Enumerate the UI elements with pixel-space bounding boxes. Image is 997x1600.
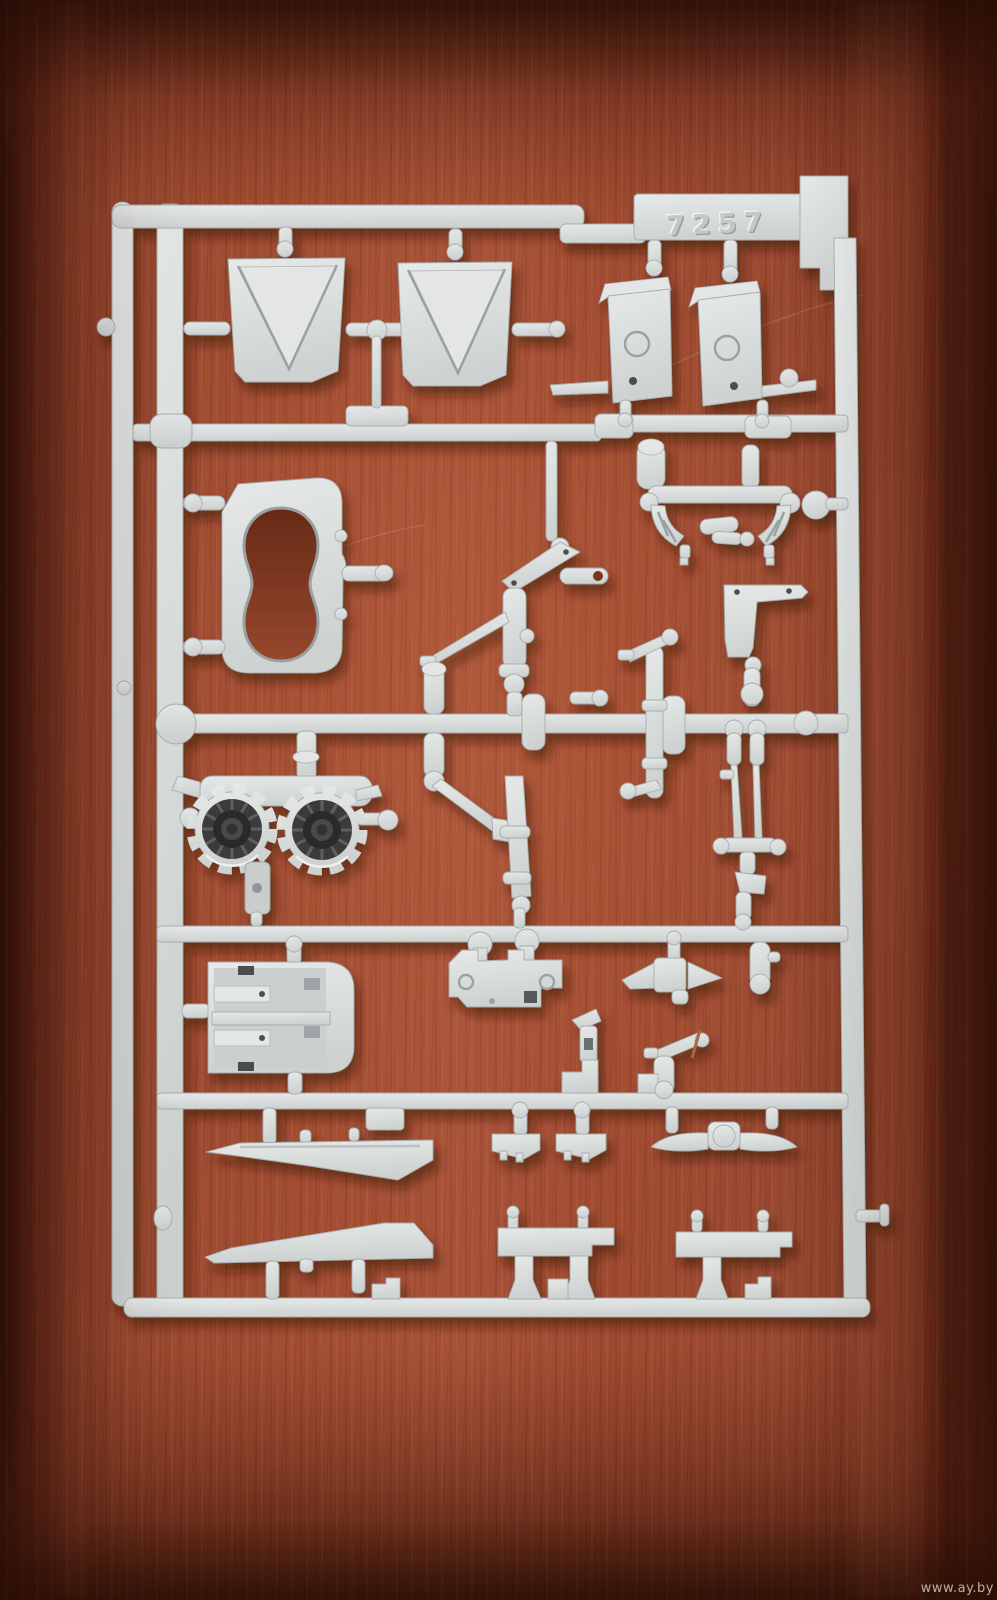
frame-rail-outer-left: [112, 202, 133, 1306]
part-intake-ramp-left: [228, 258, 345, 382]
sprue-illustration: 7257 7257 7257: [0, 0, 997, 1600]
part-strake-lower: [205, 1223, 433, 1299]
peanut-cutout: [244, 508, 318, 661]
part-intake-ramp-right: [398, 262, 512, 386]
part-strake-upper: [206, 1108, 433, 1180]
frame-rail-inner-left: [157, 204, 183, 1304]
part-cockpit-tub: [182, 936, 354, 1094]
frame-runner-b: [157, 714, 848, 733]
part-intake-trunk-right: [689, 281, 816, 428]
part-prop-vanes: [651, 1107, 797, 1151]
photo-of-model-sprue-on-wood-table: 7257 7257 7257: [0, 0, 997, 1600]
injection-node: [156, 704, 196, 744]
nozzle-left: [191, 788, 273, 870]
frame-runner-bottom: [124, 1298, 870, 1317]
mold-number-text: 7257: [666, 207, 770, 242]
frame-runner-top: [112, 205, 584, 228]
part-step-rail-right: [676, 1210, 792, 1299]
part-clip-small: [562, 1009, 601, 1093]
part-hook-right: [556, 1102, 606, 1162]
part-strut-small: [638, 1030, 709, 1099]
plastic-sprue: 7257 7257 7257: [97, 176, 889, 1317]
part-gear-strut-center: [420, 441, 608, 928]
part-intake-trunk-left: [550, 277, 672, 427]
part-step-rail-left: [498, 1206, 614, 1299]
watermark-text: www.ay.by: [921, 1581, 994, 1596]
frame-runner-a: [133, 424, 601, 441]
nozzle-right: [281, 789, 363, 871]
frame-rail-right: [834, 238, 866, 1300]
part-exhaust-housing: [183, 478, 393, 673]
part-engine-nozzles: [172, 731, 398, 926]
mold-number: 7257 7257 7257: [664, 205, 771, 243]
part-hook-left: [492, 1102, 540, 1162]
frame-runner-d: [157, 1093, 848, 1109]
part-ring-segment-cluster: [637, 439, 848, 565]
